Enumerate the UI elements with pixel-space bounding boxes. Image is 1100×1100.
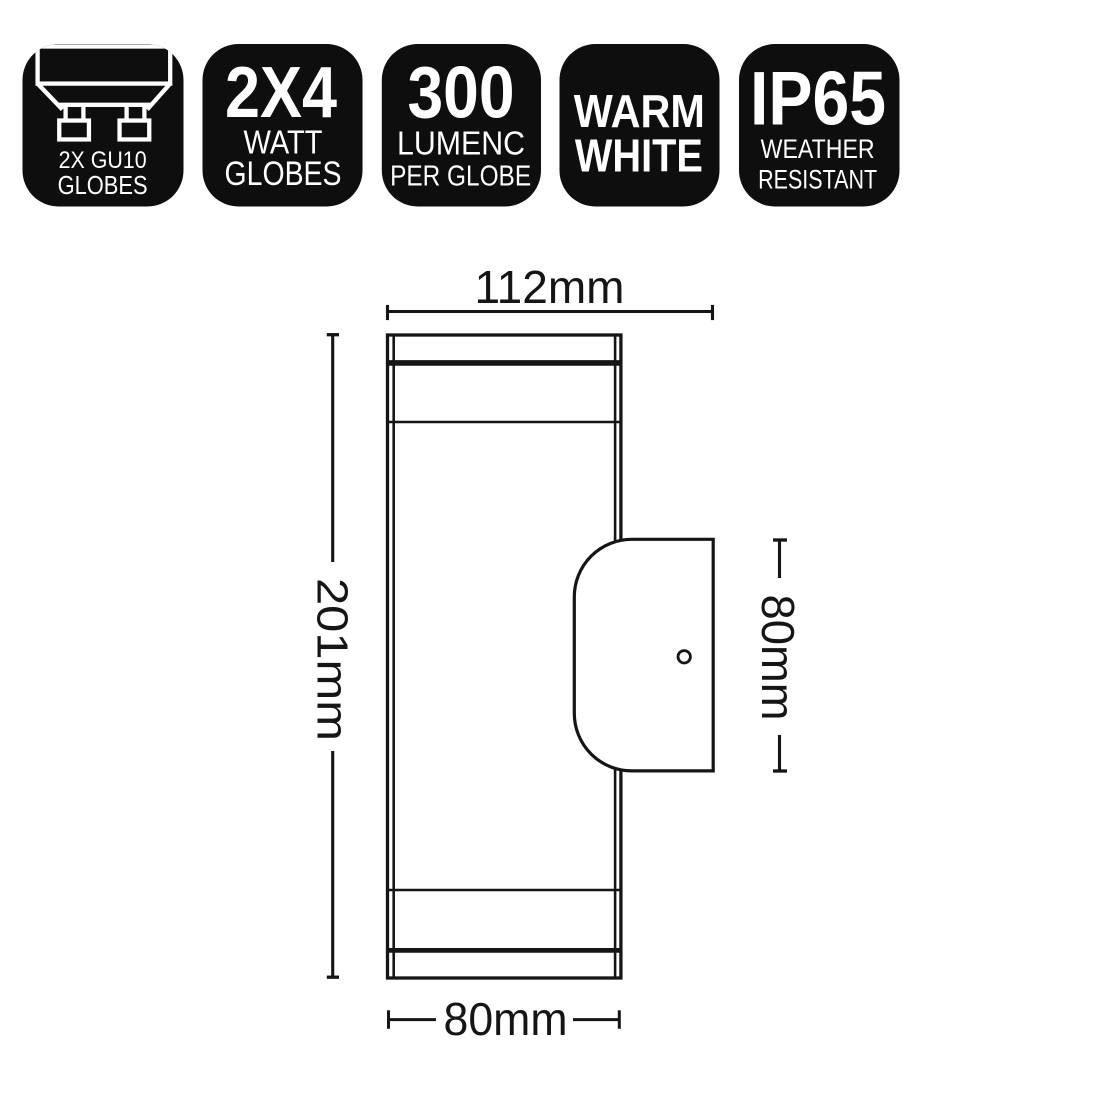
svg-text:300: 300: [408, 53, 515, 134]
svg-text:WEATHER: WEATHER: [761, 134, 875, 164]
svg-text:80mm: 80mm: [444, 993, 568, 1045]
svg-text:RESISTANT: RESISTANT: [758, 164, 877, 194]
svg-text:GLOBES: GLOBES: [58, 170, 148, 200]
svg-text:201mm: 201mm: [308, 578, 357, 741]
svg-text:112mm: 112mm: [475, 261, 625, 313]
svg-text:LUMENC: LUMENC: [397, 125, 525, 162]
svg-text:80mm: 80mm: [752, 595, 804, 721]
svg-text:GLOBES: GLOBES: [225, 155, 342, 193]
svg-text:2X4: 2X4: [225, 53, 337, 133]
svg-text:IP65: IP65: [750, 56, 886, 141]
svg-text:WHITE: WHITE: [575, 130, 703, 182]
svg-text:PER GLOBE: PER GLOBE: [390, 160, 531, 192]
